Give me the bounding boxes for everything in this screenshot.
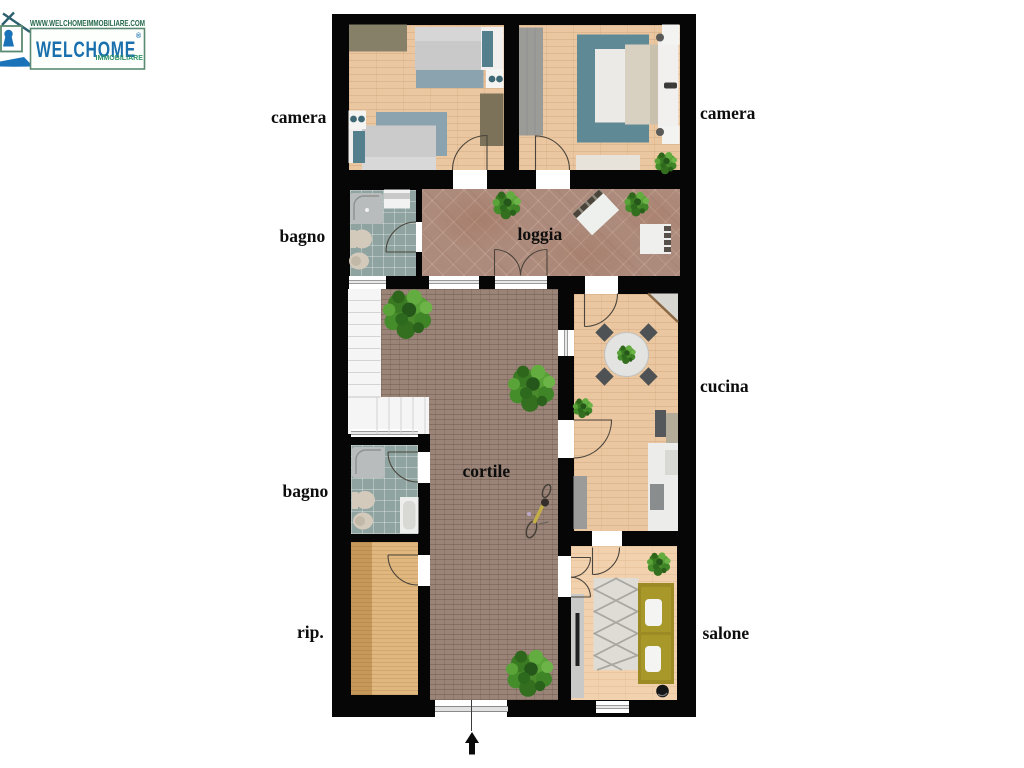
svg-text:®: ®: [136, 32, 142, 40]
svg-text:IMMOBILIARE: IMMOBILIARE: [96, 53, 144, 62]
svg-text:WWW.WELCHOMEIMMOBILIARE.COM: WWW.WELCHOMEIMMOBILIARE.COM: [30, 18, 145, 28]
